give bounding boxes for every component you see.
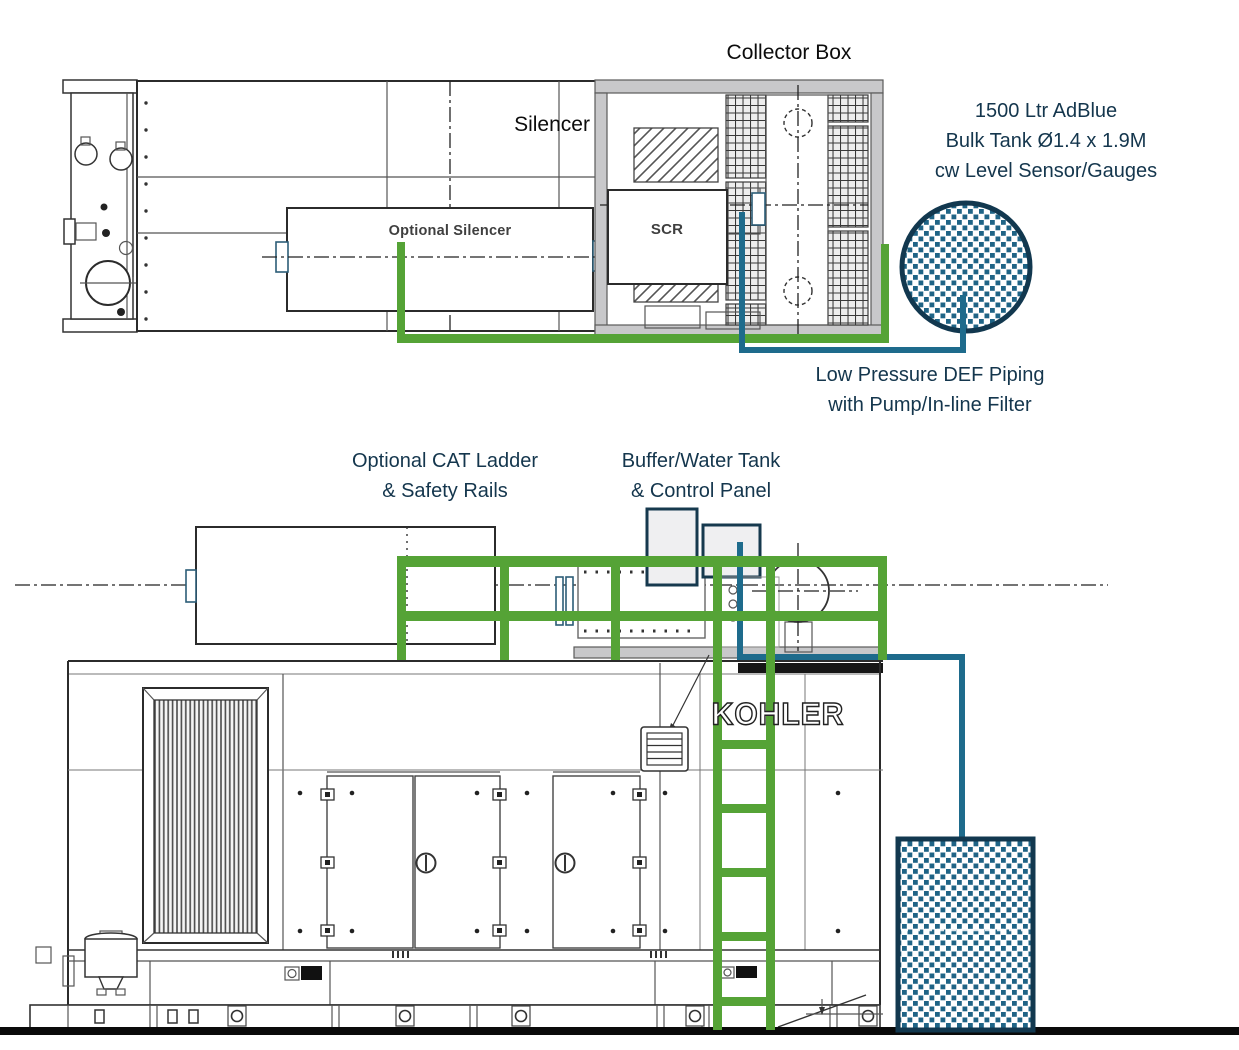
scr-label: SCR bbox=[617, 215, 717, 244]
def-label-line1: Low Pressure DEF Piping bbox=[770, 360, 1090, 390]
silencer-label: Silencer bbox=[492, 110, 612, 139]
cat-ladder-label-line2: & Safety Rails bbox=[314, 476, 576, 506]
adblue-tank-label: 1500 Ltr AdBlue Bulk Tank Ø1.4 x 1.9M cw… bbox=[896, 96, 1196, 186]
hatched-duct bbox=[634, 128, 718, 182]
def-piping-label: Low Pressure DEF Piping with Pump/In-lin… bbox=[770, 360, 1090, 420]
adblue-label-line3: cw Level Sensor/Gauges bbox=[896, 156, 1196, 186]
radiator-louver-panel bbox=[143, 688, 268, 943]
elevation-view bbox=[0, 509, 1239, 1035]
mid-rail bbox=[397, 611, 887, 621]
optional-silencer-label: Optional Silencer bbox=[340, 217, 560, 246]
buffer-label-line1: Buffer/Water Tank bbox=[572, 446, 830, 476]
kohler-logo: KOHLER bbox=[703, 699, 853, 729]
buffer-water-tank-box bbox=[647, 509, 697, 585]
roof-silencer bbox=[186, 527, 495, 644]
ladder-rail-left bbox=[713, 556, 722, 1030]
top-rail bbox=[397, 556, 887, 567]
ground-line bbox=[0, 1027, 1239, 1035]
roof-black-strip bbox=[738, 663, 883, 673]
access-doors bbox=[298, 772, 841, 948]
base-skid bbox=[30, 950, 883, 1028]
fuel-pump-unit bbox=[36, 931, 137, 995]
def-label-line2: with Pump/In-line Filter bbox=[770, 390, 1090, 420]
def-storage-tank bbox=[898, 839, 1033, 1030]
cat-ladder-label: Optional CAT Ladder & Safety Rails bbox=[314, 446, 576, 506]
buffer-label-line2: & Control Panel bbox=[572, 476, 830, 506]
adblue-label-line2: Bulk Tank Ø1.4 x 1.9M bbox=[896, 126, 1196, 156]
adblue-label-line1: 1500 Ltr AdBlue bbox=[896, 96, 1196, 126]
ladder-rail-right bbox=[766, 556, 775, 1030]
buffer-tank-label: Buffer/Water Tank & Control Panel bbox=[572, 446, 830, 506]
air-inlet-vent bbox=[641, 655, 709, 771]
genset-arrangement-diagram: Collector Box Silencer 1500 Ltr AdBlue B… bbox=[0, 0, 1239, 1050]
collector-box-label: Collector Box bbox=[689, 38, 889, 67]
plan-radiator-end bbox=[63, 80, 137, 332]
cat-ladder-label-line1: Optional CAT Ladder bbox=[314, 446, 576, 476]
